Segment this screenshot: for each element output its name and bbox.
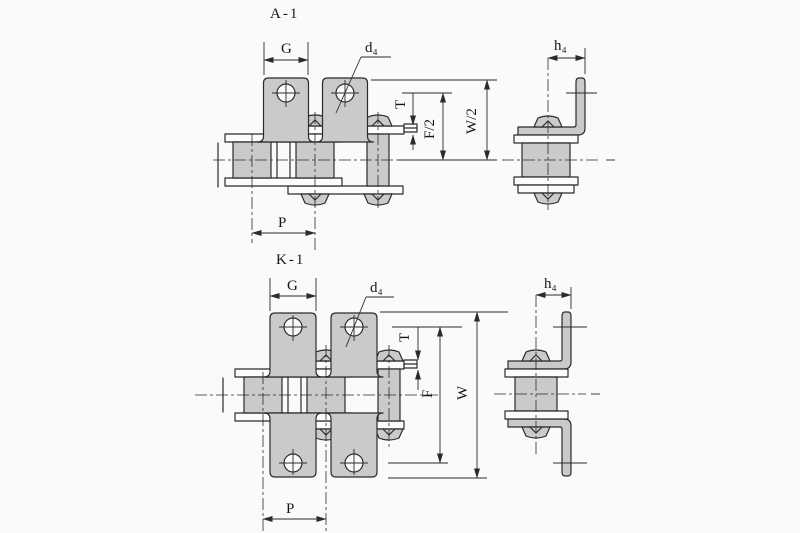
f2-dim-label: F/2	[422, 119, 438, 139]
drawing-canvas: A-1	[0, 0, 800, 533]
t-dim-label-a1: T	[393, 100, 409, 109]
a1-title-label: A-1	[270, 6, 299, 22]
h4-dim-label-k1: h₄	[544, 276, 557, 292]
t-dim-label-k1: T	[397, 333, 413, 342]
g-dim-label-a1: G	[281, 41, 292, 57]
k1-assembly: K-1	[195, 252, 600, 531]
d4-dim-label-a1: d₄	[365, 40, 378, 56]
w2-dim-label: W/2	[464, 108, 480, 134]
d4-dim-label-k1: d₄	[370, 280, 383, 296]
a1-front-view	[213, 78, 497, 250]
f-dim-label: F	[420, 390, 436, 398]
k1-title-label: K-1	[276, 252, 305, 268]
k1-side-view	[494, 295, 600, 476]
p-dim-label-a1: P	[278, 215, 286, 231]
p-dim-label-k1: P	[286, 501, 294, 517]
a1-side-view	[502, 58, 615, 210]
chain-attachment-drawing: A-1	[0, 0, 800, 533]
w-dim-label: W	[455, 385, 471, 400]
h4-dim-label-a1: h₄	[554, 38, 567, 54]
k1-front-view	[195, 313, 440, 531]
g-dim-label-k1: G	[287, 278, 298, 294]
a1-assembly: A-1	[213, 6, 615, 250]
